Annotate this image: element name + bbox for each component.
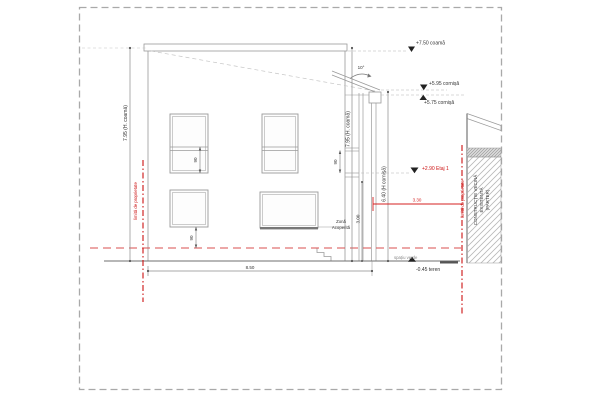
dim-label-90a: 90	[193, 157, 198, 163]
neighbour-label-2: EXISTENTĂ	[478, 187, 484, 212]
zona-label-1: Zonă	[336, 219, 346, 224]
dim-width	[147, 261, 373, 276]
level-label-cornisa-low: +5.75 cornișă	[424, 100, 454, 106]
level-markers	[346, 47, 466, 262]
roof-slope-label: 10°	[358, 65, 365, 70]
roof-slope-line	[332, 71, 380, 90]
dimension-lines	[82, 47, 389, 276]
gutter	[369, 92, 381, 103]
dim-label-width: 8.50	[246, 265, 255, 270]
window-upper-right	[262, 114, 298, 173]
dim-90-lower-left	[195, 227, 197, 248]
exterior-steps	[311, 248, 339, 261]
dim-label-height-cornisa: 6.40 (H cornișă)	[382, 166, 388, 202]
spatiu-verde-label: spațiu verde	[394, 255, 418, 260]
parapet-band	[144, 44, 347, 51]
dim-90-upper-right	[339, 150, 341, 173]
level-triangle-cornisa-high	[420, 85, 428, 91]
dim-label-height-right: 7.95 (H. coamă)	[346, 111, 352, 147]
property-label-left: limită de proprietate	[133, 182, 138, 220]
ground	[104, 261, 460, 262]
neighbour-label-1: CONSTRUCȚIE VECINĂ	[472, 175, 478, 226]
window-lower-left	[170, 190, 208, 227]
elevation-drawing: +7.50 coamă +5.95 cornișă +5.75 cornișă …	[0, 0, 600, 400]
elevation-sheet: +7.50 coamă +5.95 cornișă +5.75 cornișă …	[0, 0, 600, 400]
zona-label-2: Acoperită	[332, 225, 351, 230]
property-label-right: limită de proprietate	[460, 180, 465, 218]
level-label-coama: +7.50 coamă	[416, 41, 445, 47]
level-label-teren: -0.45 teren	[416, 267, 440, 273]
window-upper-left	[170, 114, 208, 173]
dim-label-parter: 3.00	[356, 214, 361, 223]
level-label-cornisa-high: +5.95 cornișă	[429, 81, 459, 87]
hidden-roof-line	[151, 51, 375, 91]
roof-slope-annotation	[350, 74, 372, 79]
dim-label-90c: 90	[189, 235, 194, 241]
level-label-etaj1: +2.90 Etaj 1	[422, 166, 449, 172]
dim-label-90b: 90	[333, 159, 338, 165]
dim-label-height-left: 7.95 (H. coamă)	[123, 105, 129, 141]
windows	[170, 114, 318, 229]
level-triangle-etaj1	[411, 168, 419, 174]
slope-arrowhead	[367, 74, 371, 78]
level-triangle-coama	[408, 47, 415, 53]
door-lower-right	[260, 192, 318, 229]
dim-label-setback: 3.30	[413, 198, 422, 203]
neighbour-label-3: (PARTER)	[485, 189, 490, 210]
